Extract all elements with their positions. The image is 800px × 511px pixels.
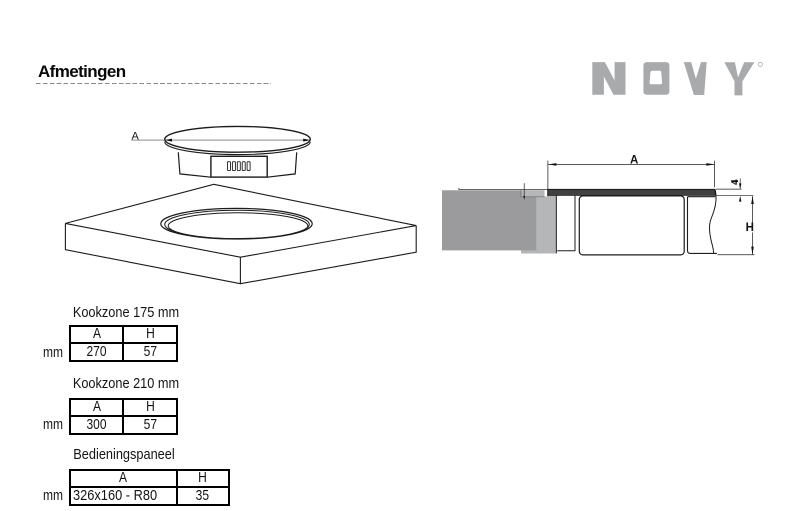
svg-text:H: H bbox=[746, 222, 754, 234]
svg-text:A: A bbox=[630, 154, 638, 166]
svg-text:A: A bbox=[132, 131, 140, 143]
